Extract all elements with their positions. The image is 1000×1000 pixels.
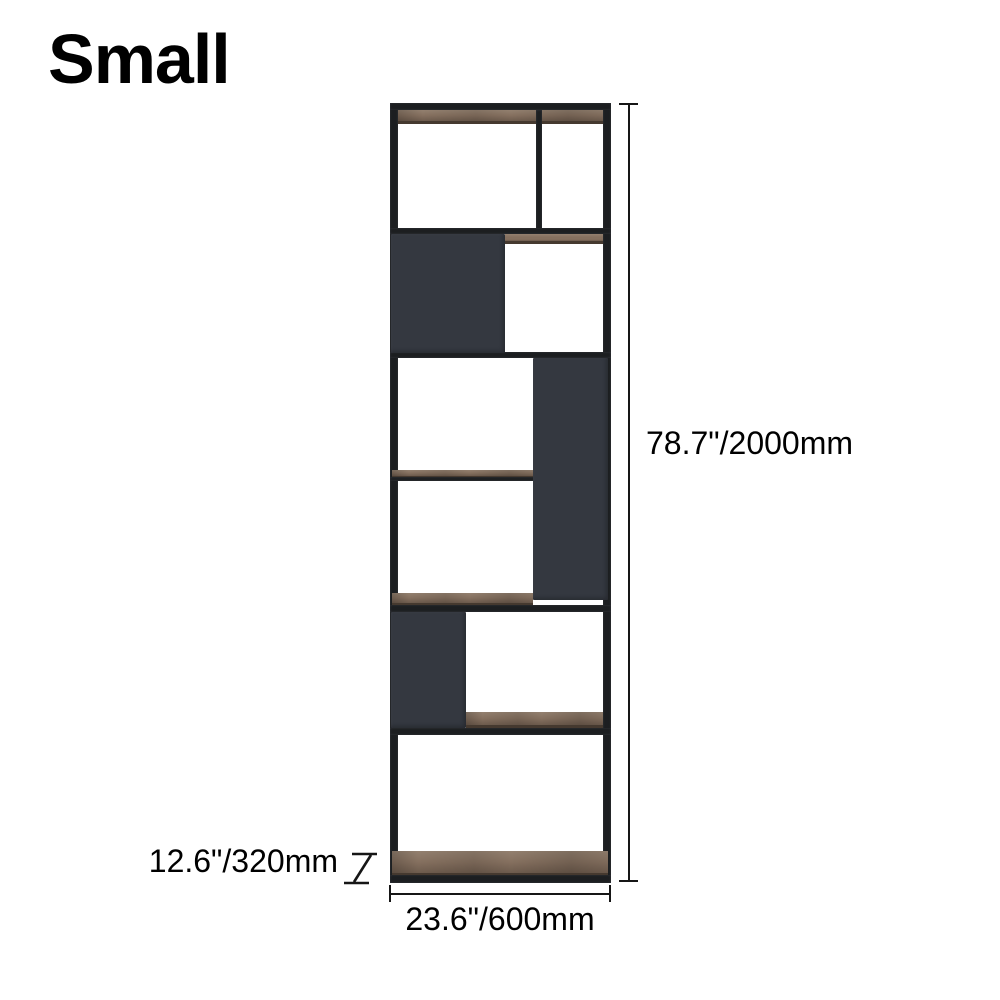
depth-dimension-mark-icon [340, 848, 380, 890]
bookshelf-illustration [390, 103, 611, 883]
height-dimension-label: 78.7"/2000mm [646, 426, 853, 461]
shelf-frame-left [390, 103, 398, 883]
height-dimension-rule [628, 103, 630, 882]
shelf-crossbar-middle-left [390, 477, 536, 481]
width-dimension-line [389, 885, 611, 902]
product-size-diagram: Small 78.7"/2000mm 2 [0, 0, 1000, 1000]
shelf-crossbar-3 [390, 605, 611, 612]
door-panel-lower-left [391, 612, 466, 728]
shelf-frame-bottom [390, 875, 611, 883]
height-dimension-line [619, 103, 638, 882]
width-dimension-tick-right [609, 885, 611, 902]
width-dimension-rule [389, 893, 611, 895]
depth-dimension-label: 12.6"/320mm [130, 844, 338, 879]
shelf-board-top [398, 110, 603, 124]
shelf-board-row5-right [466, 712, 603, 728]
width-dimension-label: 23.6"/600mm [390, 902, 610, 937]
shelf-crossbar-4 [390, 728, 611, 735]
size-variant-title: Small [48, 24, 230, 94]
shelf-board-row2-right [505, 234, 603, 244]
height-dimension-tick-bottom [619, 880, 638, 882]
door-panel-middle-right [533, 358, 608, 600]
shelf-board-base [392, 851, 608, 876]
shelf-divider-top-section [536, 110, 542, 234]
door-panel-upper-left [391, 234, 505, 353]
shelf-frame-top [390, 103, 611, 110]
